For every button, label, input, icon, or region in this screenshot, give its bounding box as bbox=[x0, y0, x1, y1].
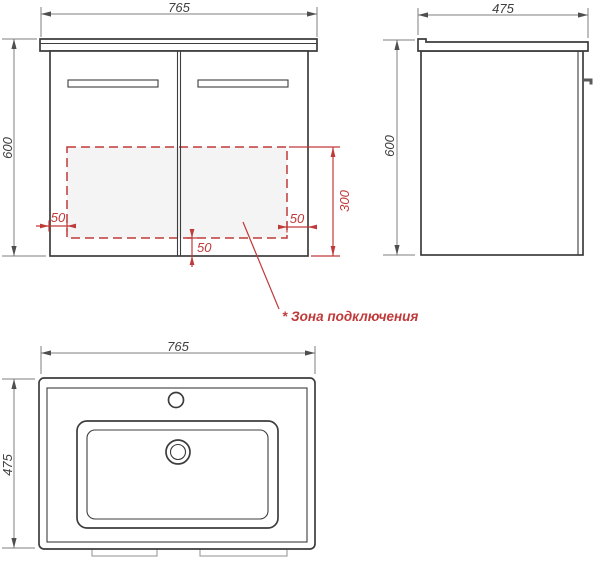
basin-width-label: 765 bbox=[167, 339, 189, 354]
side-door-handle bbox=[583, 79, 593, 85]
zone-right-offset-label: 50 bbox=[290, 211, 305, 226]
side-height-label: 600 bbox=[382, 134, 397, 156]
basin-depth-label: 475 bbox=[0, 453, 15, 475]
basin-width-dimension: 765 bbox=[41, 339, 315, 374]
zone-height-label: 300 bbox=[337, 189, 352, 211]
side-height-dimension: 600 bbox=[382, 40, 415, 255]
zone-bottom-offset-label: 50 bbox=[197, 240, 212, 255]
front-height-dimension: 600 bbox=[0, 39, 46, 256]
side-depth-label: 475 bbox=[492, 1, 514, 16]
cabinet-door-tab-left bbox=[92, 549, 157, 556]
front-view: 765 600 50 50 bbox=[0, 0, 418, 324]
connection-zone-note: * Зона подключения bbox=[282, 309, 418, 324]
front-countertop bbox=[40, 39, 317, 51]
side-view: 475 600 bbox=[382, 1, 593, 255]
drawing-page: 765 600 50 50 bbox=[0, 0, 600, 563]
cabinet-door-tab-right bbox=[200, 549, 287, 556]
side-depth-dimension: 475 bbox=[418, 1, 588, 38]
front-width-label: 765 bbox=[168, 0, 190, 15]
technical-drawing: 765 600 50 50 bbox=[0, 0, 600, 563]
front-width-dimension: 765 bbox=[41, 0, 317, 37]
side-countertop bbox=[418, 39, 588, 51]
basin-depth-dimension: 475 bbox=[0, 379, 35, 548]
side-cabinet-body bbox=[421, 51, 583, 255]
basin-top-view: 765 475 bbox=[0, 339, 315, 556]
zone-left-offset-label: 50 bbox=[51, 210, 66, 225]
front-height-label: 600 bbox=[0, 136, 15, 158]
